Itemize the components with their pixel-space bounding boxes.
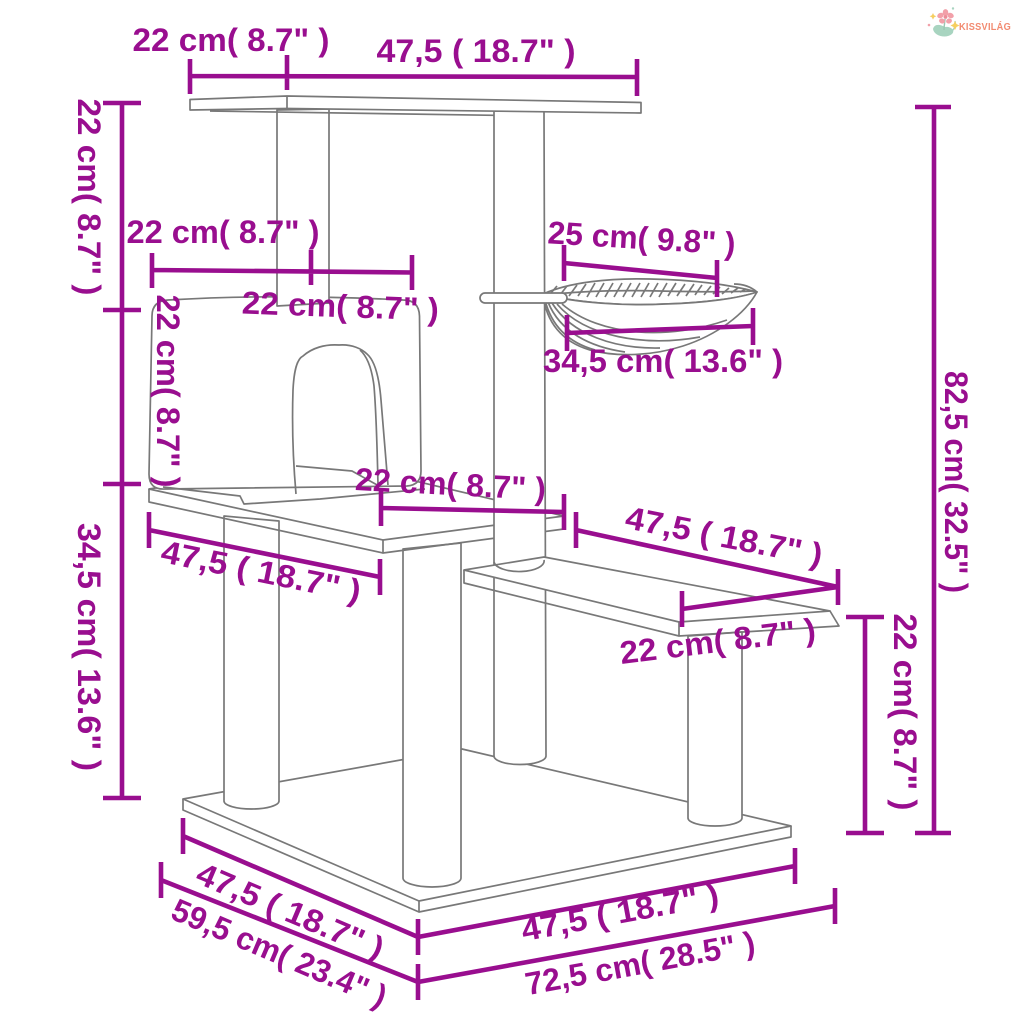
svg-text:22 cm( 8.7" ): 22 cm( 8.7" ) bbox=[150, 295, 186, 488]
svg-text:34,5 cm( 13.6" ): 34,5 cm( 13.6" ) bbox=[71, 523, 107, 771]
svg-text:22 cm( 8.7" ): 22 cm( 8.7" ) bbox=[241, 285, 439, 328]
svg-text:34,5 cm( 13.6" ): 34,5 cm( 13.6" ) bbox=[543, 343, 783, 379]
svg-text:22 cm( 8.7" ): 22 cm( 8.7" ) bbox=[127, 214, 320, 250]
svg-text:47,5 ( 18.7" ): 47,5 ( 18.7" ) bbox=[377, 33, 576, 69]
svg-text:82,5 cm( 32.5" ): 82,5 cm( 32.5" ) bbox=[938, 371, 974, 593]
svg-text:22 cm( 8.7" ): 22 cm( 8.7" ) bbox=[71, 99, 107, 296]
svg-text:22 cm( 8.7" ): 22 cm( 8.7" ) bbox=[887, 614, 923, 811]
svg-text:KISSVILÁG: KISSVILÁG bbox=[959, 20, 1011, 33]
svg-text:22 cm( 8.7" ): 22 cm( 8.7" ) bbox=[133, 22, 330, 58]
